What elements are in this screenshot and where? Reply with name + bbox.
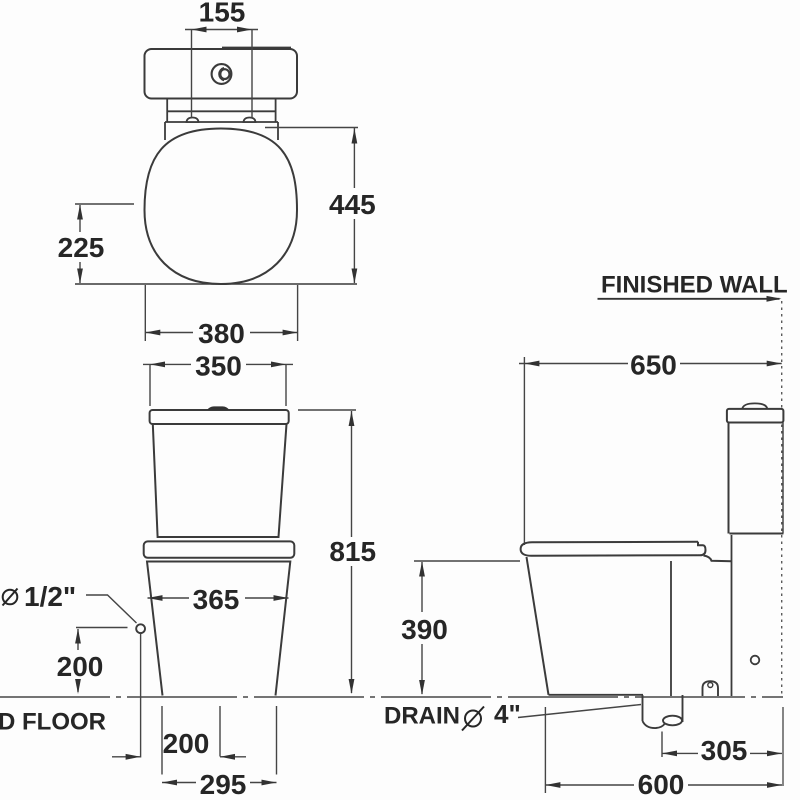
svg-text:295: 295 bbox=[200, 769, 247, 800]
svg-text:350: 350 bbox=[195, 351, 242, 382]
svg-text:1/2": 1/2" bbox=[24, 581, 76, 612]
svg-text:200: 200 bbox=[163, 728, 210, 759]
svg-text:445: 445 bbox=[329, 189, 376, 220]
svg-text:600: 600 bbox=[638, 769, 685, 800]
svg-text:390: 390 bbox=[401, 614, 448, 645]
svg-text:225: 225 bbox=[58, 232, 105, 263]
svg-text:155: 155 bbox=[199, 0, 246, 28]
svg-text:815: 815 bbox=[329, 536, 376, 567]
svg-text:380: 380 bbox=[198, 318, 245, 349]
svg-text:DRAIN: DRAIN bbox=[384, 703, 460, 730]
svg-text:4": 4" bbox=[494, 699, 521, 729]
svg-text:200: 200 bbox=[57, 651, 104, 682]
svg-text:FINISHED WALL: FINISHED WALL bbox=[601, 272, 788, 299]
svg-text:305: 305 bbox=[701, 735, 748, 766]
svg-text:D FLOOR: D FLOOR bbox=[0, 709, 106, 736]
svg-text:365: 365 bbox=[193, 584, 240, 615]
svg-text:650: 650 bbox=[630, 350, 677, 381]
